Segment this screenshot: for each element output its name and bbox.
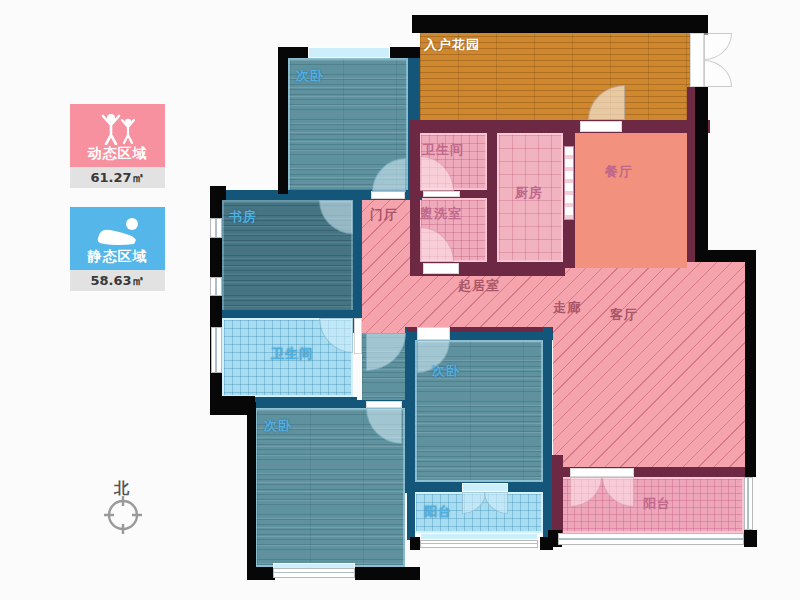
- door-opening: [417, 327, 450, 340]
- legend-dynamic-zone-card: 动态区域: [70, 104, 165, 167]
- wall-segment: [390, 47, 420, 58]
- room-label-bathroom-left: 卫生间: [271, 345, 313, 363]
- legend-static-zone-area: 58.63㎡: [70, 270, 165, 291]
- wall-segment: [247, 567, 275, 580]
- room-label-balcony-blue: 阳台: [424, 503, 452, 521]
- wall-segment: [543, 327, 552, 548]
- sleeping-person-icon: [70, 213, 165, 249]
- wall-segment: [687, 87, 695, 262]
- room-label-entry-garden: 入户花园: [424, 36, 480, 54]
- sliding-door: [564, 146, 574, 220]
- door-opening: [570, 468, 634, 477]
- wall-segment: [405, 327, 415, 493]
- room-label-kitchen: 厨房: [515, 184, 543, 202]
- window: [308, 47, 390, 58]
- legend-dynamic-zone-label: 动态区域: [88, 145, 148, 163]
- window: [420, 540, 538, 548]
- wall-segment: [695, 15, 708, 35]
- wall-segment: [410, 537, 420, 550]
- legend-dynamic-zone-area: 61.27㎡: [70, 167, 165, 188]
- wall-segment: [355, 567, 420, 580]
- room-label-bedroom-bottom-left: 次卧: [264, 417, 292, 435]
- room-dining: [575, 128, 687, 268]
- wall-segment: [407, 493, 415, 540]
- room-label-study: 书房: [229, 208, 257, 226]
- room-label-bedroom-top-left: 次卧: [296, 67, 324, 85]
- room-label-sitting-room: 起居室: [458, 277, 500, 295]
- wall-segment: [745, 255, 756, 477]
- room-label-washroom: 盥洗室: [420, 205, 462, 223]
- window: [558, 533, 744, 545]
- door-opening: [423, 191, 460, 197]
- room-label-bedroom-middle: 次卧: [432, 362, 460, 380]
- legend-static-zone-label: 静态区域: [88, 248, 148, 266]
- entrance-door: [690, 33, 704, 87]
- room-label-balcony-pink: 阳台: [643, 495, 671, 513]
- window: [273, 568, 355, 578]
- wall-segment: [412, 15, 708, 33]
- wall-segment: [695, 87, 708, 255]
- door-opening: [423, 263, 459, 274]
- compass-icon: [101, 492, 145, 540]
- window: [420, 533, 538, 540]
- room-label-bathroom-top: 卫生间: [422, 141, 464, 159]
- window: [210, 218, 222, 238]
- wall-segment: [278, 47, 288, 194]
- door-arc: [704, 60, 732, 87]
- door-opening: [354, 318, 362, 354]
- room-label-dining: 餐厅: [605, 163, 633, 181]
- floorplan-canvas: 入户花园 次卧 卫生间 盥洗室 厨房 餐厅 书房 门厅 起居室 走廊 客厅 卫生…: [0, 0, 800, 600]
- window: [211, 327, 222, 373]
- room-label-foyer: 门厅: [370, 206, 398, 224]
- wall-segment: [353, 200, 362, 333]
- room-label-living-room: 客厅: [610, 306, 638, 324]
- door-opening: [580, 121, 622, 132]
- legend-static-zone-card: 静态区域: [70, 207, 165, 270]
- standing-people-icon: [70, 110, 165, 146]
- wall-segment: [247, 402, 256, 578]
- balcony-door: [462, 483, 508, 492]
- door-arc: [704, 33, 732, 60]
- wall-segment: [744, 530, 757, 547]
- door-opening: [371, 191, 405, 199]
- window: [210, 277, 222, 296]
- door-opening: [366, 401, 402, 408]
- room-label-corridor: 走廊: [553, 299, 581, 317]
- wall-segment: [410, 120, 710, 133]
- wall-segment: [222, 310, 353, 318]
- wall-segment: [410, 131, 420, 276]
- window: [744, 477, 753, 530]
